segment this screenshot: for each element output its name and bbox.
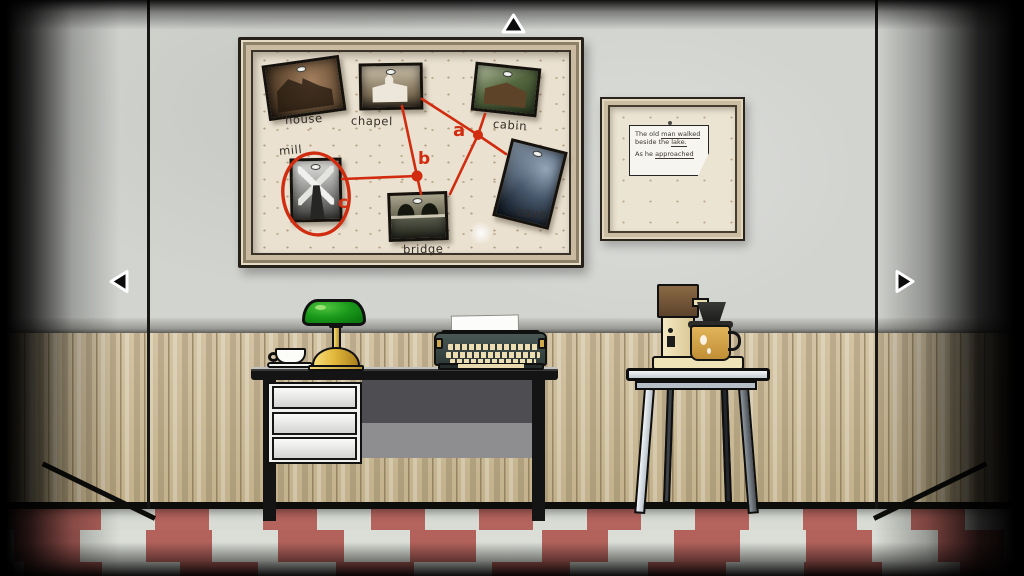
floor-tile-row <box>0 562 1024 576</box>
baseboard-line <box>0 502 1024 509</box>
bankers-lamp[interactable] <box>302 299 366 326</box>
desk-leg <box>532 379 545 521</box>
note-line-3: As he approached <box>635 151 704 159</box>
photo-pin-icon <box>296 66 307 73</box>
label-cave: cave <box>517 205 548 221</box>
lamp-highlight <box>315 305 326 310</box>
label-cabin: cabin <box>493 117 528 133</box>
label-house: house <box>285 111 323 127</box>
evidence-board[interactable]: house chapel cabin mill cave bridge a b … <box>238 37 584 268</box>
saucer <box>267 362 313 368</box>
photo-cabin[interactable] <box>471 62 542 118</box>
sparkle-highlight[interactable] <box>469 221 493 245</box>
desk-back-panel <box>362 380 534 458</box>
typewriter-keys-row <box>448 344 538 350</box>
coffee-maker-switch[interactable] <box>667 336 675 347</box>
arrow-left-icon <box>107 268 131 295</box>
photo-mill[interactable] <box>289 158 342 223</box>
photo-pin-icon <box>502 71 513 78</box>
lamp-foot <box>308 365 364 371</box>
glass-highlight <box>707 348 711 354</box>
photo-chapel[interactable] <box>359 62 424 110</box>
desk-drawer-unit[interactable] <box>267 382 362 464</box>
navigate-right-button[interactable] <box>893 268 917 295</box>
floor-tile-row <box>0 530 1024 562</box>
photo-bridge[interactable] <box>387 191 449 242</box>
marker-a: a <box>453 120 465 141</box>
label-chapel: chapel <box>351 114 393 129</box>
arrow-up-icon <box>500 12 527 36</box>
glass-highlight <box>700 335 707 345</box>
typewriter-keys-row <box>446 352 540 358</box>
label-bridge: bridge <box>403 242 444 257</box>
marker-c: c <box>338 193 348 213</box>
right-wall-corner <box>875 0 878 509</box>
typewriter-knob <box>435 338 443 349</box>
note-line-2: beside the lake. <box>635 139 704 147</box>
table-apron <box>635 381 757 390</box>
note-pin-icon <box>668 121 672 125</box>
desk-drawer-bottom[interactable] <box>272 437 357 460</box>
navigate-left-button[interactable] <box>107 268 131 295</box>
arrow-right-icon <box>893 268 917 295</box>
desk-drawer-middle[interactable] <box>272 412 357 435</box>
label-mill: mill <box>278 142 302 158</box>
marker-b: b <box>418 149 430 169</box>
note-paper[interactable]: The old man walked beside the lake. As h… <box>629 125 709 176</box>
photo-pin-icon <box>386 69 396 75</box>
desk-drawer-top[interactable] <box>272 386 357 409</box>
framed-note-board[interactable]: The old man walked beside the lake. As h… <box>600 97 745 241</box>
coffee-carafe[interactable] <box>690 325 731 361</box>
coffee-maker-light <box>668 328 673 333</box>
typewriter-knob <box>538 338 546 349</box>
left-wall-corner <box>147 0 150 509</box>
game-scene: house chapel cabin mill cave bridge a b … <box>0 0 1024 576</box>
typewriter-spacebar <box>458 364 524 368</box>
navigate-up-button[interactable] <box>500 12 527 36</box>
